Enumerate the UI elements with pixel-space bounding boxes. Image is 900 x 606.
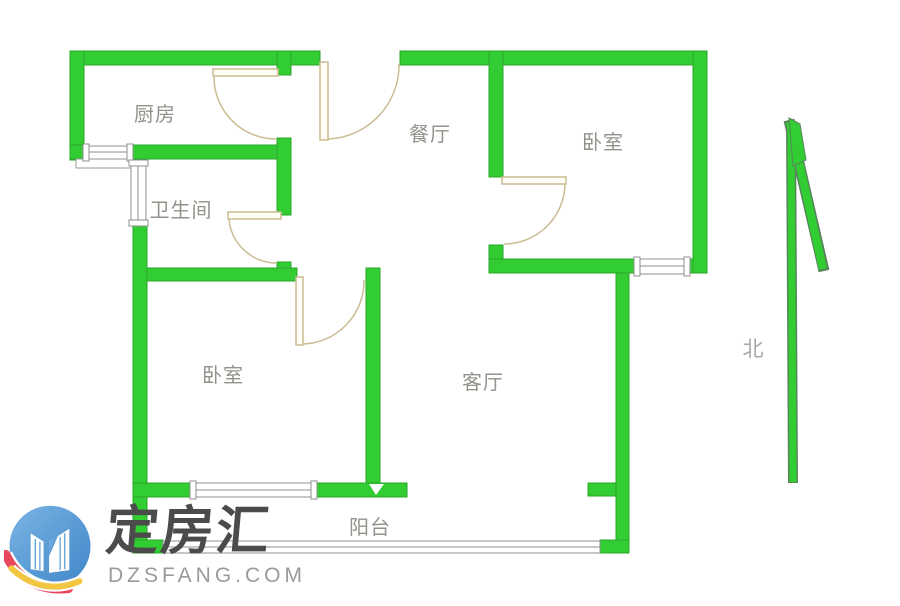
brand-domain: DZSFANG.COM: [108, 565, 306, 586]
wall-kitchen-divider-stub-top: [277, 51, 291, 75]
compass-label: 北: [743, 338, 764, 361]
kitchen-door: [213, 69, 278, 139]
room-label-dining: 餐厅: [409, 123, 451, 146]
wall-kitchen-bottom-b: [130, 145, 291, 159]
wall-bedroom-south-bottom-right: [315, 483, 407, 497]
room-label-balcony: 阳台: [349, 516, 391, 539]
bathroom-window: [129, 160, 148, 226]
entry-door: [320, 62, 399, 140]
kitchen-window: [83, 144, 133, 161]
brand-logo-icon: [4, 500, 96, 598]
room-label-bedroom-south: 卧室: [202, 364, 244, 387]
doors: [213, 62, 566, 345]
wall-balcony-corner-right: [600, 540, 629, 553]
wall-bedroom-north-bottom: [489, 259, 637, 273]
watermark: 定房汇 DZSFANG.COM: [0, 494, 300, 604]
wall-bedroom-south-right: [366, 268, 380, 497]
wall-top-right: [400, 51, 707, 65]
walls: [70, 51, 707, 553]
wall-outer-left-upper: [70, 51, 84, 160]
wall-kitchen-divider-mid: [277, 138, 291, 215]
room-label-bedroom-north: 卧室: [582, 131, 624, 154]
wall-living-right: [616, 268, 629, 553]
north-arrow: [789, 118, 824, 483]
wall-bathroom-bottom: [133, 268, 297, 281]
wall-bedroom-north-left-top: [489, 51, 503, 177]
bedroom-north-door: [502, 177, 566, 244]
brand-name: 定房汇: [104, 505, 274, 558]
wall-living-bottom-stub: [588, 483, 616, 496]
wall-outer-right: [693, 51, 707, 273]
bedroom-south-door: [296, 277, 364, 345]
floor-plan-image: 北 厨房 餐厅 卧室 卫生间 卧室 客厅 阳台: [0, 0, 900, 606]
room-label-bathroom: 卫生间: [150, 199, 213, 222]
bathroom-door: [228, 212, 281, 263]
room-label-living: 客厅: [462, 371, 504, 394]
bedroom-north-window: [634, 257, 690, 276]
room-label-kitchen: 厨房: [134, 103, 176, 126]
